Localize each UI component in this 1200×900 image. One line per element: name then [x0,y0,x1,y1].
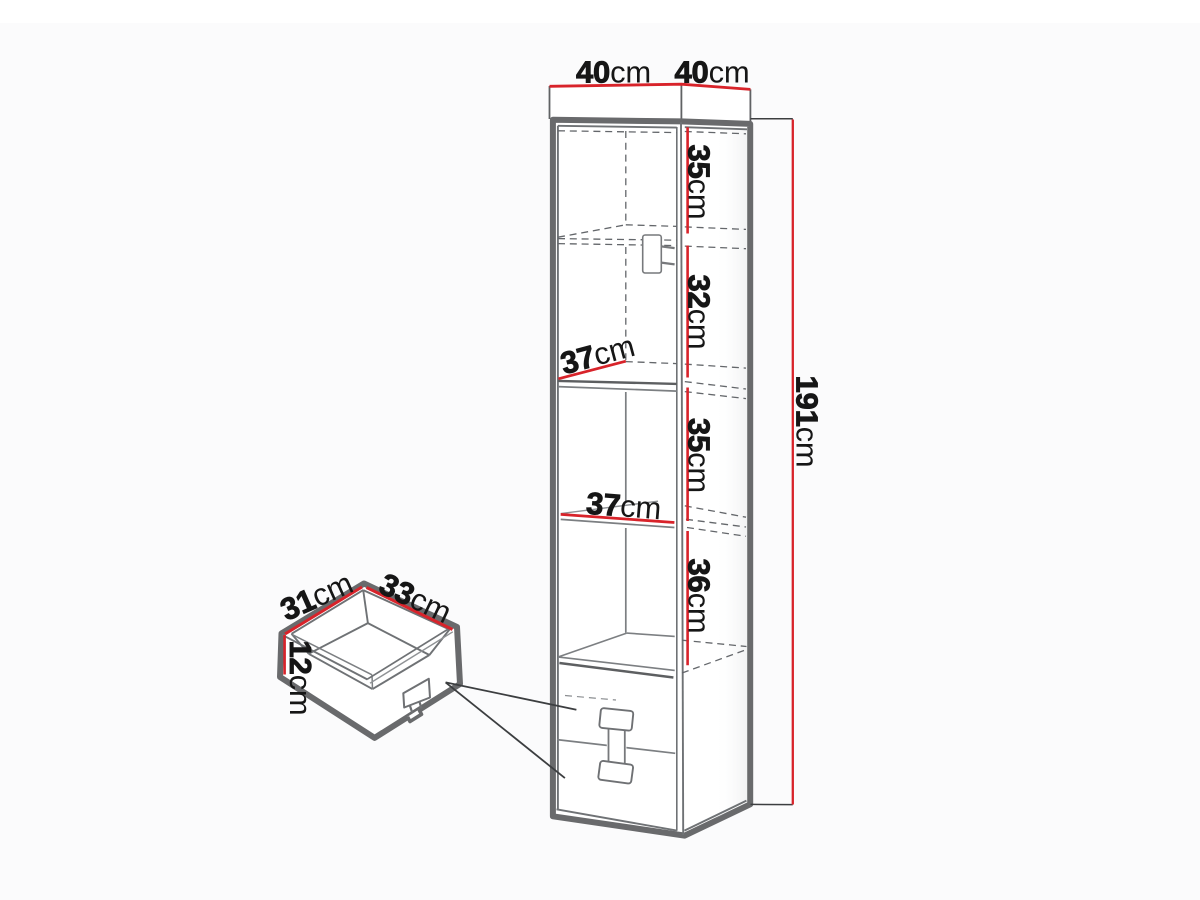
svg-text:37cm: 37cm [585,486,663,527]
svg-text:35cm: 35cm [682,418,717,493]
svg-text:191cm: 191cm [790,376,825,468]
svg-text:35cm: 35cm [682,145,717,220]
svg-text:12cm: 12cm [283,641,318,716]
svg-text:40cm: 40cm [576,55,651,90]
svg-text:40cm: 40cm [675,55,750,90]
svg-text:36cm: 36cm [682,559,717,634]
svg-text:32cm: 32cm [682,275,717,350]
